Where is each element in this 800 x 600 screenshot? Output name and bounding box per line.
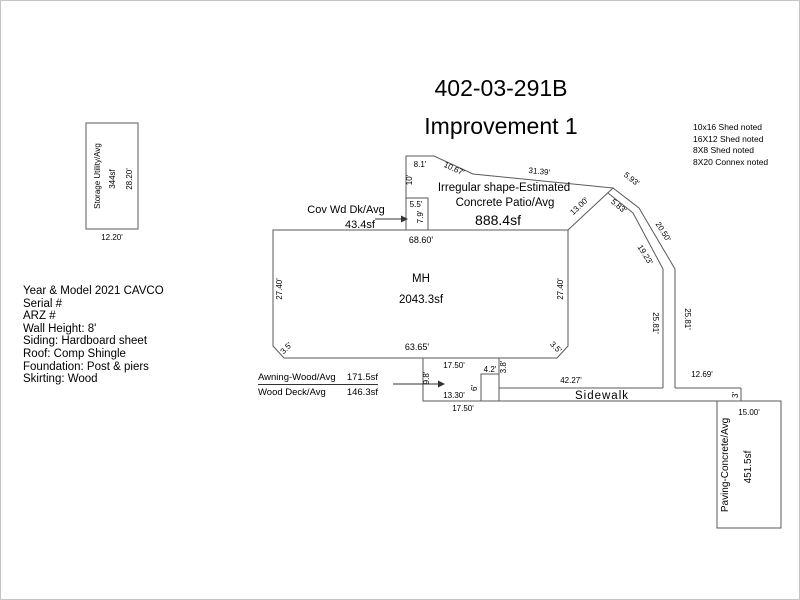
info-line: ARZ # — [23, 310, 164, 323]
patio-dim-right: 13.00' — [568, 195, 590, 217]
mh-label: MH — [412, 273, 430, 285]
patio-dim-top: 8.1' — [414, 160, 427, 169]
patio-dim-inner-step: 5.83' — [609, 197, 628, 215]
awning-row: Awning-Wood/Avg 171.5sf — [258, 372, 378, 385]
info-line: Year & Model 2021 CAVCO — [23, 285, 164, 298]
info-line: Wall Height: 8' — [23, 323, 164, 336]
improvement-title: Improvement 1 — [341, 107, 661, 145]
walkway-outer-edge — [613, 188, 675, 388]
paving-name: Paving-Concrete/Avg — [720, 418, 731, 512]
walkway-dim-inner-vert: 25.81' — [651, 312, 660, 334]
walkway-dim-outer-diag: 20.50' — [654, 220, 673, 243]
info-line: Siding: Hardboard sheet — [23, 335, 164, 348]
sidewalk-label: Sidewalk — [575, 390, 629, 402]
deck-dim-bottom-inner: 13.30' — [443, 391, 465, 400]
storage-base-dim: 12.20' — [101, 233, 123, 242]
cov-wd-dk-dim-side: 7.9' — [416, 210, 425, 223]
deck-dim-left: 9.8' — [422, 371, 431, 384]
shed-note-line: 16X12 Shed noted — [693, 134, 768, 146]
awning-arrowhead-icon — [438, 381, 445, 388]
shed-notes: 10x16 Shed noted 16X12 Shed noted 8X8 Sh… — [693, 122, 768, 168]
walkway-dim-inner-diag: 19.23' — [636, 243, 655, 266]
mh-area: 2043.3sf — [399, 294, 444, 306]
deck-dim-step-top: 4.2' — [484, 365, 497, 374]
patio-dim-chamfer: 10.67' — [442, 160, 466, 177]
property-info: Year & Model 2021 CAVCO Serial # ARZ # W… — [23, 285, 164, 386]
awning-name: Awning-Wood/Avg — [258, 372, 336, 383]
info-line: Serial # — [23, 298, 164, 311]
shed-note-line: 8X8 Shed noted — [693, 145, 768, 157]
walkway-dim-outer-vert: 25.81' — [683, 308, 692, 330]
deck-dim-top: 17.50' — [443, 361, 465, 370]
sidewalk-dim-end: 3' — [731, 392, 740, 398]
storage-area: 344sf — [108, 168, 117, 188]
shed-note-line: 10x16 Shed noted — [693, 122, 768, 134]
sidewalk-dim-left-run: 42.27' — [560, 376, 582, 385]
paving-area: 451.5sf — [743, 450, 754, 483]
awning-deck-labels: Awning-Wood/Avg 171.5sf Wood Deck/Avg 14… — [258, 372, 378, 398]
sketch-page: Storage Utility/Avg 344sf 28.20' 12.20' … — [0, 0, 800, 600]
patio-dim-long: 31.39' — [528, 166, 551, 177]
cov-wd-dk-dim-top: 5.5' — [410, 200, 423, 209]
parcel-id: 402-03-291B — [341, 69, 661, 107]
page-title: 402-03-291B Improvement 1 — [341, 69, 661, 145]
cov-wd-dk-name: Cov Wd Dk/Avg — [307, 204, 384, 216]
info-line: Roof: Comp Shingle — [23, 348, 164, 361]
cov-wd-dk-area: 43.4sf — [345, 219, 376, 231]
mh-dim-right: 27.40' — [556, 278, 565, 300]
deck-dim-step-left: 6' — [470, 385, 479, 391]
mh-dim-left: 27.40' — [275, 278, 284, 300]
patio-desc-line2: Concrete Patio/Avg — [456, 197, 555, 209]
deck-dim-bottom-outer: 17.50' — [452, 404, 474, 413]
patio-desc-line1: Irregular shape-Estimated — [438, 182, 570, 194]
mh-dim-corner-left: 3.5' — [279, 340, 295, 356]
wood-deck-name: Wood Deck/Avg — [258, 387, 326, 398]
wood-deck-area: 146.3sf — [347, 387, 378, 398]
deck-dim-step-right: 3.8' — [499, 360, 508, 373]
deck-step-outline — [481, 374, 499, 401]
patio-dim-left: 10' — [405, 174, 414, 185]
info-line: Skirting: Wood — [23, 373, 164, 386]
cov-wd-dk-arrowhead-icon — [401, 216, 408, 223]
paving-dim-top: 15.00' — [738, 408, 760, 417]
walkway-inner-edge — [608, 193, 663, 388]
mh-dim-bottom: 63.65' — [405, 342, 430, 352]
walkway-dim-outer-step: 5.93' — [622, 170, 641, 188]
mh-dim-top: 68.60' — [409, 235, 434, 245]
wood-deck-row: Wood Deck/Avg 146.3sf — [258, 385, 378, 398]
info-line: Foundation: Post & piers — [23, 361, 164, 374]
sidewalk-dim-right-run: 12.69' — [691, 370, 713, 379]
storage-name: Storage Utility/Avg — [93, 143, 102, 209]
shed-note-line: 8X20 Connex noted — [693, 157, 768, 169]
patio-area: 888.4sf — [475, 212, 521, 228]
awning-area: 171.5sf — [347, 372, 378, 383]
storage-side-dim: 28.20' — [125, 168, 134, 190]
